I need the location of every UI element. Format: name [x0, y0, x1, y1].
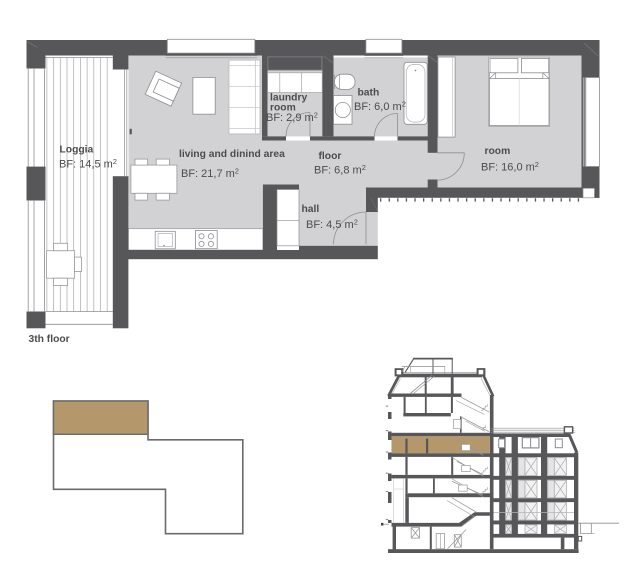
- svg-text:BF: 21,7 m2: BF: 21,7 m2: [181, 167, 239, 181]
- svg-text:room: room: [485, 146, 511, 157]
- svg-text:BF: 6,8 m2: BF: 6,8 m2: [314, 163, 366, 177]
- svg-text:BF: 6,0 m2: BF: 6,0 m2: [354, 100, 406, 114]
- svg-text:Loggia: Loggia: [60, 144, 94, 155]
- svg-text:BF: 14,5 m2: BF: 14,5 m2: [59, 157, 117, 171]
- svg-text:BF: 2,9 m2: BF: 2,9 m2: [266, 111, 318, 125]
- svg-text:BF: 16,0 m2: BF: 16,0 m2: [481, 160, 539, 174]
- svg-text:bath: bath: [358, 87, 380, 98]
- svg-text:living and dinind area: living and dinind area: [179, 149, 285, 160]
- svg-text:floor: floor: [319, 151, 342, 162]
- svg-text:hall: hall: [302, 204, 320, 215]
- svg-text:3th floor: 3th floor: [29, 334, 70, 345]
- svg-text:BF: 4,5 m2: BF: 4,5 m2: [306, 218, 358, 232]
